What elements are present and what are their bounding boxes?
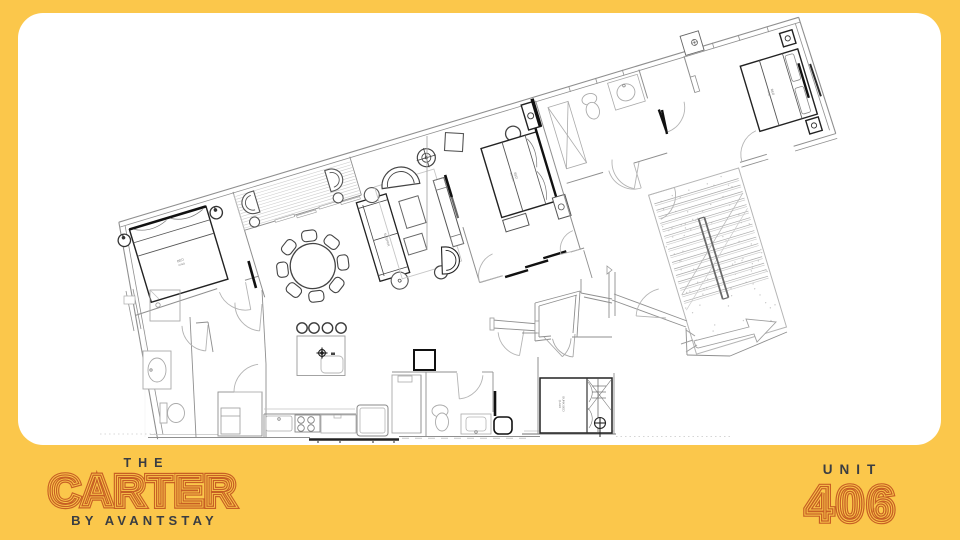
svg-text:CARTER: CARTER xyxy=(48,467,236,516)
svg-text:UNIT: UNIT xyxy=(823,462,883,477)
svg-text:BUNK BED: BUNK BED xyxy=(562,396,566,412)
svg-text:QUEEN: QUEEN xyxy=(558,400,561,409)
svg-text:BY AVANTSTAY: BY AVANTSTAY xyxy=(71,513,218,528)
svg-text:406: 406 xyxy=(805,476,897,532)
